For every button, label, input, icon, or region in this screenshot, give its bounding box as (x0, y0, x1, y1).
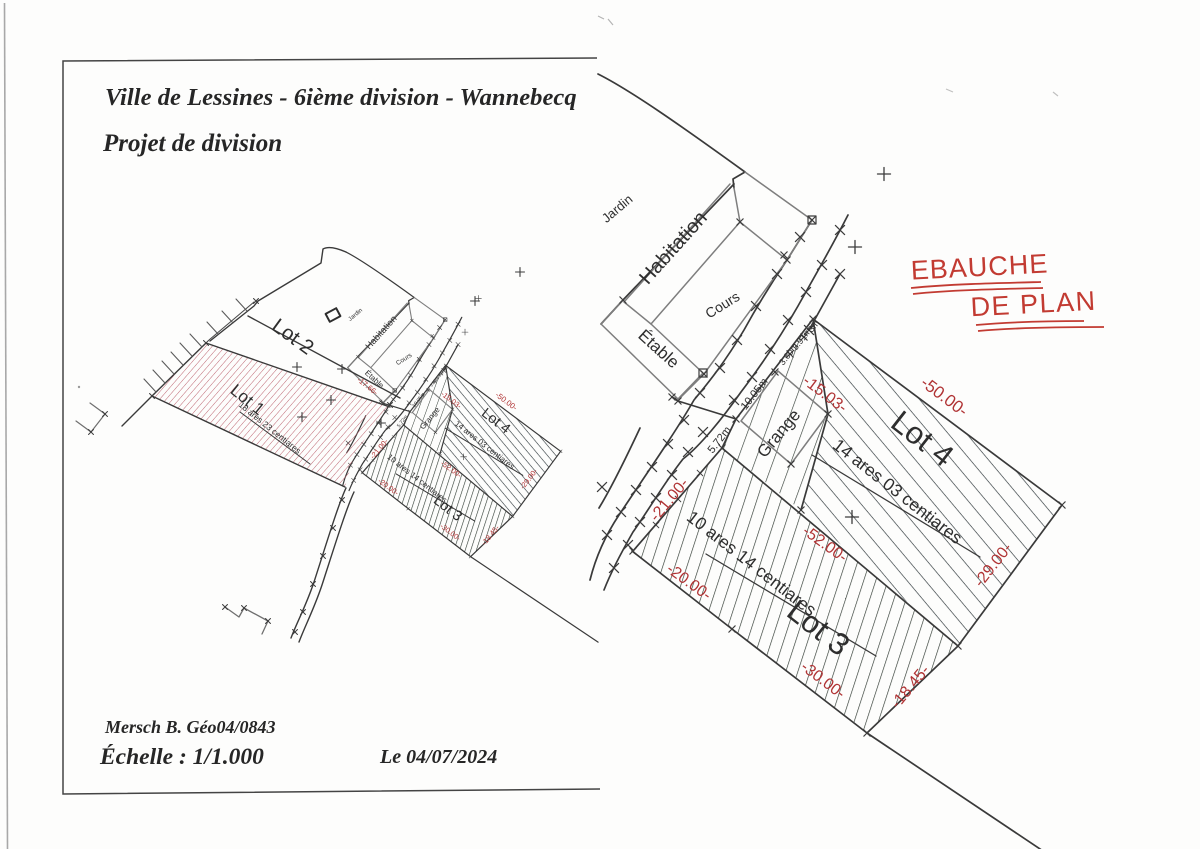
svg-text:Le 04/07/2024: Le 04/07/2024 (379, 746, 497, 768)
svg-text:Mersch B. Géo04/0843: Mersch B. Géo04/0843 (104, 717, 276, 737)
svg-text:Échelle : 1/1.000: Échelle : 1/1.000 (99, 744, 264, 770)
svg-text:Projet de division: Projet de division (102, 130, 282, 157)
svg-text:Ville de Lessines - 6ième divi: Ville de Lessines - 6ième division - Wan… (105, 84, 577, 111)
